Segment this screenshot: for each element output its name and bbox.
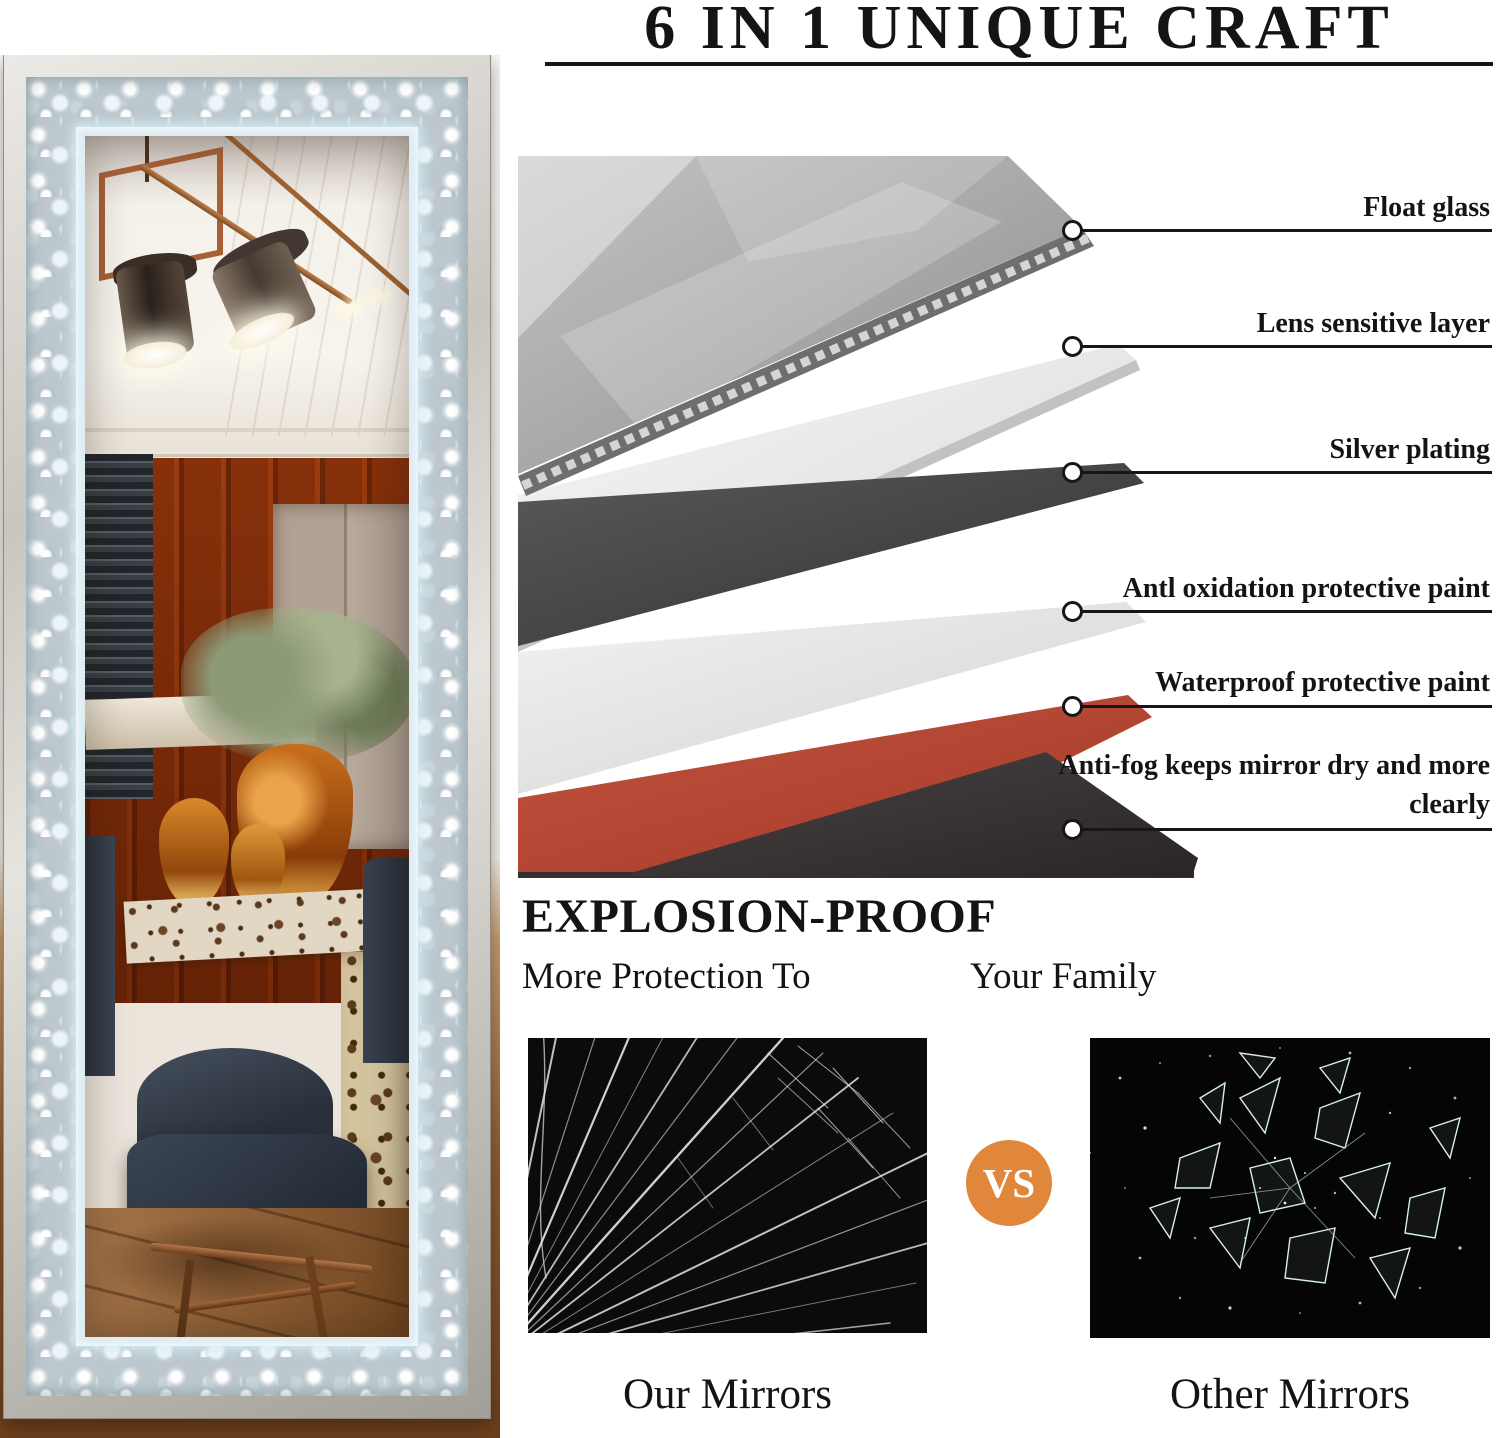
- callout-dot-lens: [1062, 336, 1083, 357]
- callout-label-antifog: Anti-fog keeps mirror dry and more clear…: [1050, 746, 1490, 824]
- callout-line-oxidation: [1077, 610, 1492, 613]
- our-mirror-crack-image: [528, 1038, 927, 1333]
- callout-label-lens: Lens sensitive layer: [1257, 304, 1490, 343]
- page-title: 6 IN 1 UNIQUE CRAFT: [545, 0, 1493, 66]
- other-mirror-shatter-image: [1090, 1038, 1490, 1338]
- callout-label-oxidation: Antl oxidation protective paint: [1123, 569, 1490, 608]
- callout-label-float-glass: Float glass: [1363, 188, 1490, 227]
- callout-line-float-glass: [1077, 229, 1492, 232]
- subtitle-right: Your Family: [970, 955, 1156, 998]
- callout-line-lens: [1077, 345, 1492, 348]
- callout-line-waterproof: [1077, 705, 1492, 708]
- callout-label-waterproof: Waterproof protective paint: [1155, 663, 1490, 702]
- our-mirrors-caption: Our Mirrors: [528, 1370, 927, 1419]
- explosion-proof-heading: EXPLOSION-PROOF: [522, 889, 996, 944]
- callout-line-antifog: [1077, 828, 1492, 831]
- callout-line-silver: [1077, 471, 1492, 474]
- callout-dot-silver: [1062, 462, 1083, 483]
- crystal-mirror-frame: [4, 55, 490, 1418]
- callout-dot-float-glass: [1062, 220, 1083, 241]
- other-mirrors-caption: Other Mirrors: [1090, 1370, 1490, 1419]
- callout-label-silver: Silver plating: [1329, 430, 1490, 469]
- mirror-photo: [0, 55, 500, 1438]
- reflection-vignette: [85, 136, 409, 1337]
- mirror-reflection: [85, 136, 409, 1337]
- vs-badge: VS: [966, 1140, 1052, 1226]
- callout-dot-waterproof: [1062, 696, 1083, 717]
- callout-dot-oxidation: [1062, 601, 1083, 622]
- product-infographic: 6 IN 1 UNIQUE CRAFT: [0, 0, 1500, 1438]
- subtitle-left: More Protection To: [522, 955, 811, 998]
